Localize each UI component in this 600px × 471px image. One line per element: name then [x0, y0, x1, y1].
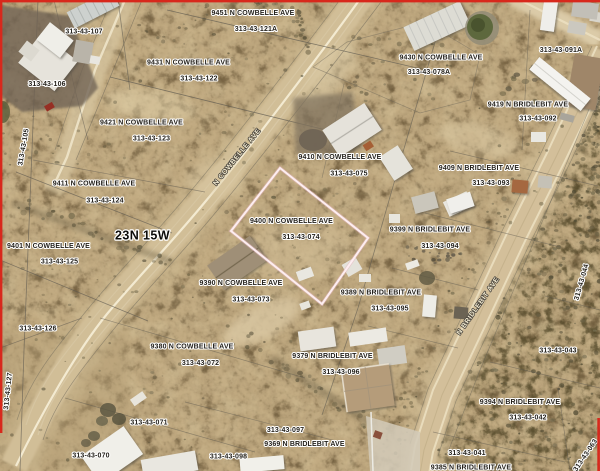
svg-text:9431 N COWBELLE AVE: 9431 N COWBELLE AVE	[147, 60, 230, 67]
svg-text:9419 N BRIDLEBIT AVE: 9419 N BRIDLEBIT AVE	[488, 102, 569, 109]
svg-text:313-43-124: 313-43-124	[86, 198, 123, 205]
svg-text:313-43-095: 313-43-095	[371, 306, 408, 313]
svg-text:9410 N COWBELLE AVE: 9410 N COWBELLE AVE	[299, 154, 382, 161]
svg-text:313-43-070: 313-43-070	[72, 453, 109, 460]
svg-text:9385 N BRIDLEBIT AVE: 9385 N BRIDLEBIT AVE	[431, 465, 512, 471]
svg-text:9411 N COWBELLE AVE: 9411 N COWBELLE AVE	[53, 181, 136, 188]
svg-text:9379 N BRIDLEBIT AVE: 9379 N BRIDLEBIT AVE	[292, 353, 373, 360]
svg-text:313-43-041: 313-43-041	[448, 450, 485, 457]
svg-text:9369 N BRIDLEBIT AVE: 9369 N BRIDLEBIT AVE	[264, 441, 345, 448]
svg-text:9380 N COWBELLE AVE: 9380 N COWBELLE AVE	[151, 344, 234, 351]
svg-text:9451 N COWBELLE AVE: 9451 N COWBELLE AVE	[212, 10, 295, 17]
svg-text:313-43-075: 313-43-075	[330, 171, 367, 178]
svg-text:9389 N BRIDLEBIT AVE: 9389 N BRIDLEBIT AVE	[341, 290, 422, 297]
svg-text:313-43-042: 313-43-042	[509, 415, 546, 422]
svg-text:313-43-091A: 313-43-091A	[540, 47, 583, 54]
svg-text:313-43-078A: 313-43-078A	[408, 69, 451, 76]
svg-text:9400 N COWBELLE AVE: 9400 N COWBELLE AVE	[250, 218, 333, 225]
svg-text:23N 15W: 23N 15W	[115, 229, 170, 243]
svg-text:313-43-097: 313-43-097	[267, 427, 304, 434]
svg-text:313-43-106: 313-43-106	[28, 81, 65, 88]
svg-text:313-43-093: 313-43-093	[472, 180, 509, 187]
svg-text:313-43-122: 313-43-122	[180, 76, 217, 83]
svg-text:313-43-107: 313-43-107	[65, 29, 102, 36]
svg-text:9401 N COWBELLE AVE: 9401 N COWBELLE AVE	[7, 243, 90, 250]
svg-text:313-43-043: 313-43-043	[539, 348, 576, 355]
svg-text:313-43-094: 313-43-094	[421, 243, 458, 250]
svg-text:313-43-098: 313-43-098	[210, 454, 247, 461]
svg-text:9409 N BRIDLEBIT AVE: 9409 N BRIDLEBIT AVE	[439, 165, 520, 172]
svg-text:313-43-073: 313-43-073	[232, 297, 269, 304]
svg-text:313-43-074: 313-43-074	[282, 234, 319, 241]
svg-text:313-43-125: 313-43-125	[41, 259, 78, 266]
svg-text:9430 N COWBELLE AVE: 9430 N COWBELLE AVE	[400, 55, 483, 62]
svg-text:313-43-096: 313-43-096	[322, 369, 359, 376]
svg-text:313-43-071: 313-43-071	[130, 420, 167, 427]
svg-text:313-43-092: 313-43-092	[519, 116, 556, 123]
svg-text:9394 N BRIDLEBIT AVE: 9394 N BRIDLEBIT AVE	[480, 399, 561, 406]
svg-text:9399 N BRIDLEBIT AVE: 9399 N BRIDLEBIT AVE	[390, 227, 471, 234]
svg-text:313-43-072: 313-43-072	[182, 360, 219, 367]
svg-text:313-43-123: 313-43-123	[133, 136, 170, 143]
svg-text:9421 N COWBELLE AVE: 9421 N COWBELLE AVE	[100, 120, 183, 127]
svg-text:9390 N COWBELLE AVE: 9390 N COWBELLE AVE	[200, 280, 283, 287]
svg-text:313-43-121A: 313-43-121A	[235, 26, 278, 33]
svg-text:313-43-126: 313-43-126	[19, 326, 56, 333]
